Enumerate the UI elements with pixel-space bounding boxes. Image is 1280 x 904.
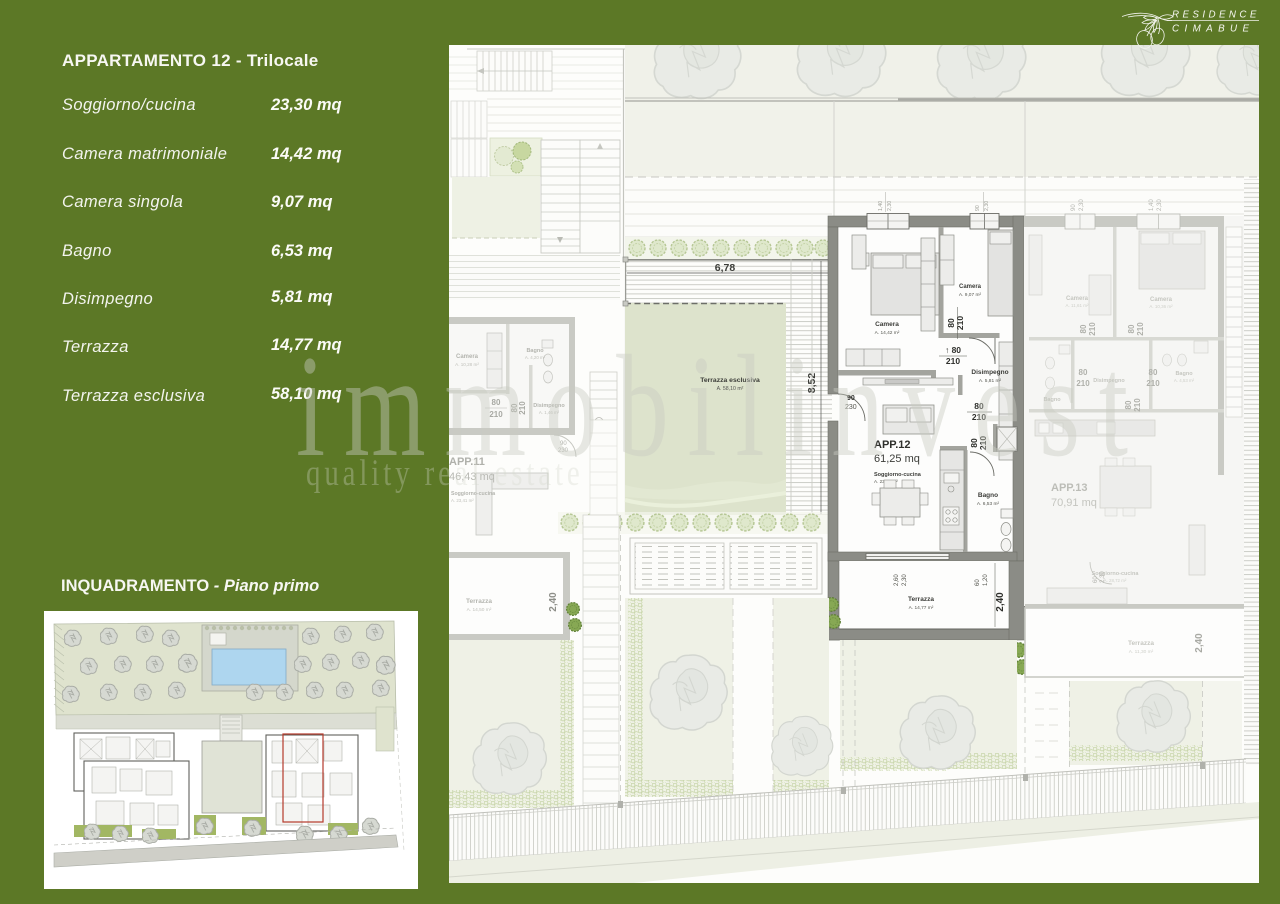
svg-text:Camera: Camera	[875, 321, 899, 328]
svg-text:1,40: 1,40	[1149, 199, 1155, 211]
svg-text:80: 80	[1079, 368, 1088, 377]
svg-text:A. 4,53 m²: A. 4,53 m²	[1174, 378, 1195, 383]
svg-text:Terrazza: Terrazza	[466, 598, 492, 605]
svg-text:Terrazza: Terrazza	[1128, 640, 1154, 647]
svg-text:Camera: Camera	[1150, 297, 1173, 303]
svg-text:Terrazza esclusiva: Terrazza esclusiva	[700, 377, 760, 384]
svg-text:Camera: Camera	[456, 354, 479, 360]
svg-text:A. 11,61 m²: A. 11,61 m²	[1066, 303, 1089, 308]
svg-text:1,20: 1,20	[983, 574, 989, 586]
svg-text:A. 14,50 m²: A. 14,50 m²	[467, 607, 492, 613]
svg-text:2,40: 2,40	[548, 592, 559, 612]
svg-text:APP.13: APP.13	[1051, 482, 1088, 494]
svg-text:2,60: 2,60	[894, 574, 900, 586]
svg-text:2,30: 2,30	[902, 574, 908, 586]
svg-text:Camera: Camera	[959, 284, 982, 290]
svg-text:90: 90	[560, 441, 567, 447]
svg-text:210: 210	[489, 410, 503, 419]
svg-text:Soggiorno-cucina: Soggiorno-cucina	[1092, 571, 1140, 577]
svg-text:210: 210	[1136, 322, 1145, 336]
svg-text:210: 210	[1076, 379, 1090, 388]
svg-text:A. 1,46 m²: A. 1,46 m²	[539, 410, 560, 415]
svg-text:A. 10,36 m²: A. 10,36 m²	[1149, 304, 1173, 309]
svg-text:60: 60	[1093, 576, 1099, 583]
svg-text:2,30: 2,30	[1079, 199, 1085, 211]
svg-text:210: 210	[518, 401, 527, 415]
svg-text:A. 14,42 m²: A. 14,42 m²	[875, 330, 900, 336]
svg-text:2,30: 2,30	[1157, 199, 1163, 211]
svg-text:Bagno: Bagno	[1043, 397, 1061, 403]
svg-text:CIMABUE: CIMABUE	[1172, 24, 1254, 35]
svg-text:Disimpegno: Disimpegno	[971, 369, 1008, 376]
svg-text:Terrazza: Terrazza	[908, 596, 934, 603]
svg-text:2,40: 2,40	[1194, 633, 1205, 653]
svg-text:210: 210	[972, 412, 986, 422]
svg-text:60: 60	[975, 579, 981, 586]
svg-text:↑ 80: ↑ 80	[945, 345, 961, 355]
svg-text:A. 9,07 m²: A. 9,07 m²	[959, 292, 982, 298]
svg-text:Disimpegno: Disimpegno	[533, 403, 565, 409]
svg-text:6,78: 6,78	[715, 262, 736, 274]
svg-text:46,43 mq: 46,43 mq	[449, 471, 495, 483]
svg-text:210: 210	[1146, 379, 1160, 388]
svg-text:A. 10,28 m²: A. 10,28 m²	[455, 362, 479, 367]
svg-text:210: 210	[955, 316, 965, 330]
svg-text:1,40: 1,40	[878, 201, 884, 211]
svg-text:210: 210	[946, 356, 960, 366]
svg-text:Disimpegno: Disimpegno	[1093, 378, 1125, 384]
svg-text:80: 80	[1079, 324, 1088, 333]
svg-text:A. 11,30 m²: A. 11,30 m²	[1129, 649, 1154, 655]
svg-text:90: 90	[847, 395, 855, 402]
svg-text:A. 4,20 m²: A. 4,20 m²	[525, 355, 546, 360]
svg-text:Bagno: Bagno	[526, 348, 544, 354]
svg-text:A. 28,72 m²: A. 28,72 m²	[1104, 578, 1127, 583]
svg-text:A. 6,53 m²: A. 6,53 m²	[977, 501, 1000, 507]
svg-text:2,40: 2,40	[995, 592, 1006, 612]
svg-text:70,91 mq: 70,91 mq	[1051, 497, 1097, 509]
svg-text:A. 14,77 m²: A. 14,77 m²	[909, 605, 934, 611]
svg-text:Bagno: Bagno	[978, 492, 998, 499]
svg-text:80: 80	[492, 398, 501, 407]
svg-text:80: 80	[1127, 324, 1136, 333]
svg-text:230: 230	[558, 448, 569, 454]
svg-text:Camera: Camera	[1066, 296, 1089, 302]
svg-text:Bagno: Bagno	[1175, 371, 1193, 377]
svg-text:210: 210	[978, 436, 988, 450]
svg-text:APP.12: APP.12	[874, 439, 911, 451]
svg-text:2,30: 2,30	[1100, 571, 1106, 583]
svg-text:80: 80	[974, 401, 984, 411]
svg-text:90: 90	[1071, 204, 1077, 211]
svg-text:210: 210	[1088, 322, 1097, 336]
svg-text:A. 58,10 m²: A. 58,10 m²	[717, 386, 744, 392]
svg-text:APP.11: APP.11	[449, 456, 485, 468]
svg-text:230: 230	[845, 404, 857, 411]
svg-text:210: 210	[1133, 398, 1142, 412]
svg-text:61,25 mq: 61,25 mq	[874, 453, 920, 465]
svg-text:RESIDENCE: RESIDENCE	[1172, 10, 1260, 21]
svg-text:80: 80	[1149, 368, 1158, 377]
svg-text:Soggiorno-cucina: Soggiorno-cucina	[874, 472, 922, 478]
svg-text:80: 80	[1124, 400, 1133, 409]
svg-text:A. 5,81 m²: A. 5,81 m²	[979, 378, 1002, 384]
svg-text:Soggiorno-cucina: Soggiorno-cucina	[451, 491, 495, 497]
svg-text:2,30: 2,30	[887, 201, 893, 211]
svg-text:A. 23,41 m²: A. 23,41 m²	[451, 498, 474, 503]
